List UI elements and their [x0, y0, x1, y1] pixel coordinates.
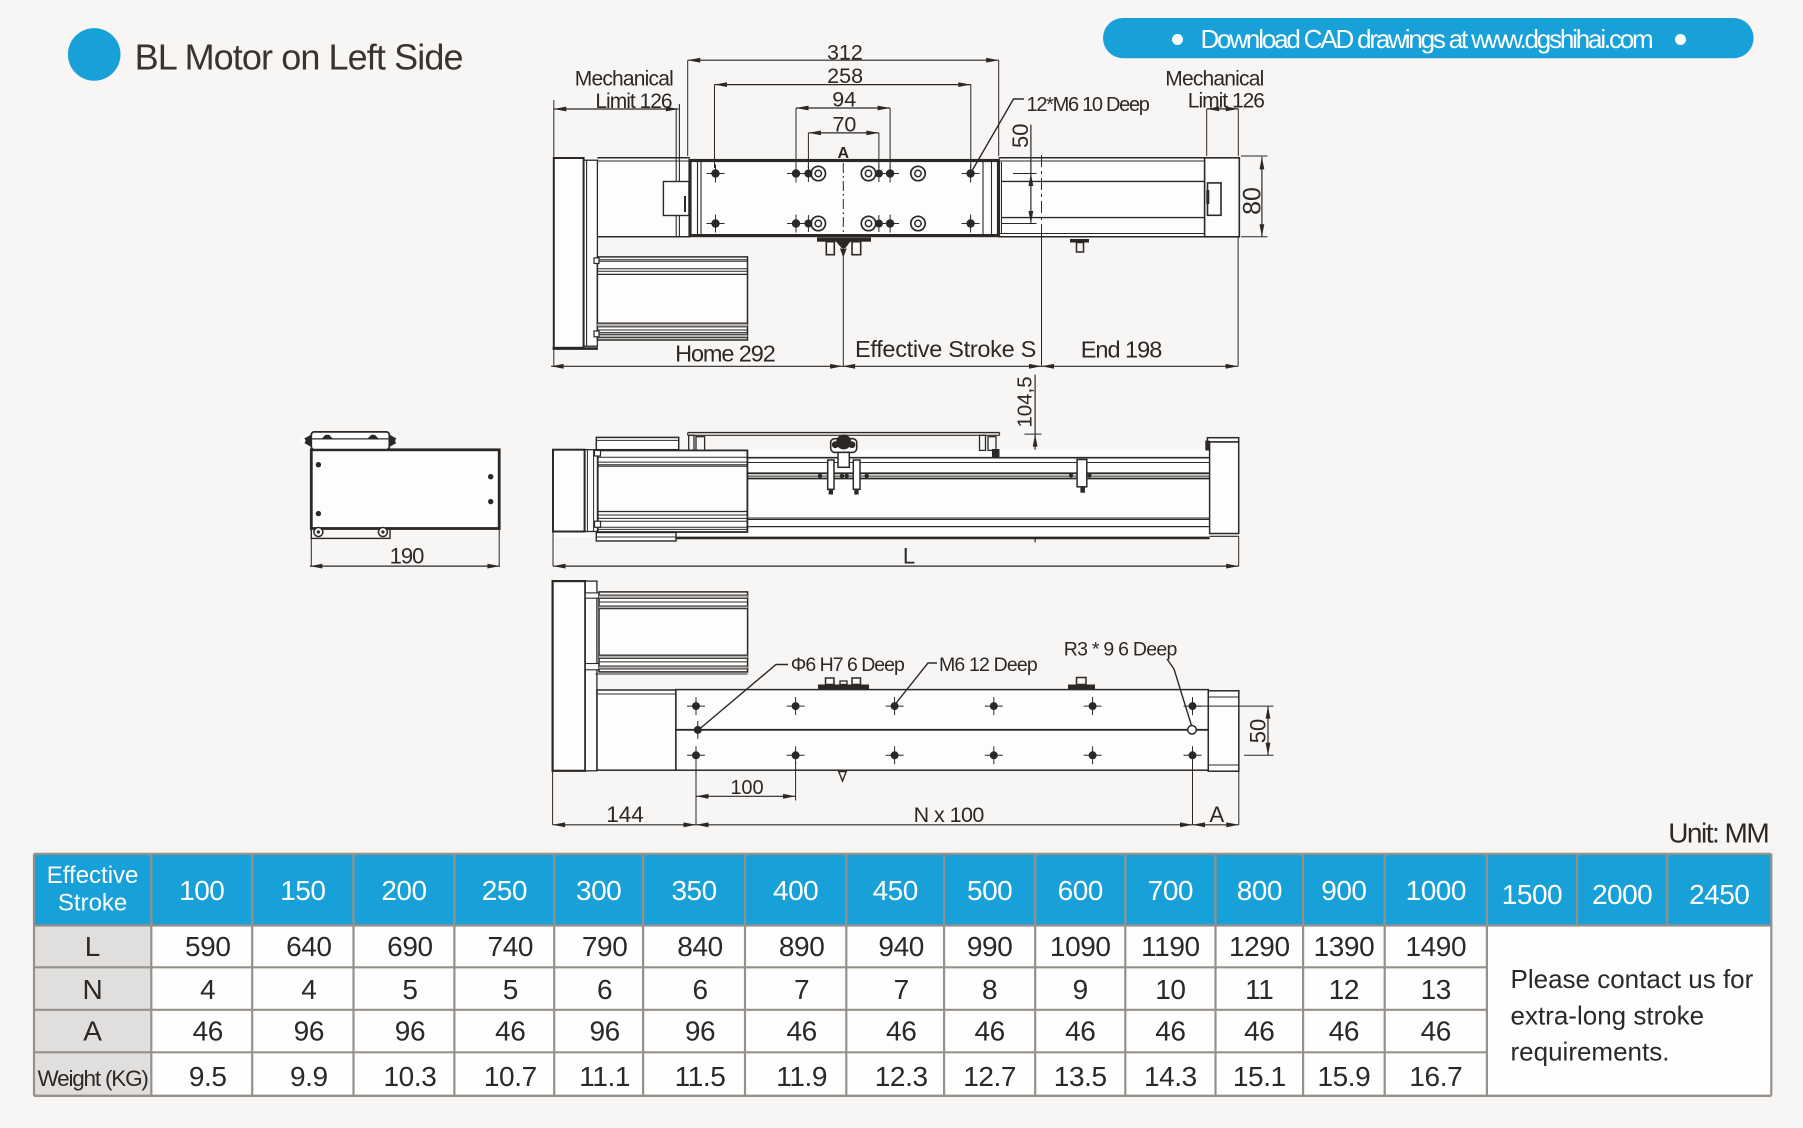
svg-text:312: 312 [827, 40, 863, 64]
svg-text:End 198: End 198 [1081, 336, 1162, 362]
svg-text:13: 13 [1421, 974, 1451, 1005]
svg-text:12.7: 12.7 [963, 1061, 1016, 1092]
svg-text:690: 690 [387, 931, 433, 962]
svg-text:990: 990 [967, 931, 1013, 962]
svg-text:258: 258 [827, 64, 863, 88]
svg-text:A: A [83, 1016, 102, 1047]
svg-text:Please contact us for: Please contact us for [1511, 964, 1754, 994]
svg-text:46: 46 [1244, 1016, 1274, 1047]
svg-text:640: 640 [286, 931, 332, 962]
svg-text:Effective: Effective [47, 862, 139, 889]
svg-text:46: 46 [1155, 1016, 1185, 1047]
svg-text:350: 350 [671, 875, 716, 906]
svg-text:5: 5 [503, 974, 518, 1005]
svg-text:300: 300 [576, 875, 621, 906]
svg-text:190: 190 [390, 544, 424, 569]
svg-text:46: 46 [1421, 1016, 1451, 1047]
svg-text:14.3: 14.3 [1144, 1061, 1197, 1092]
svg-text:144: 144 [606, 802, 644, 827]
svg-text:900: 900 [1321, 875, 1366, 906]
svg-text:9.9: 9.9 [290, 1061, 328, 1092]
svg-text:96: 96 [294, 1016, 324, 1047]
svg-text:840: 840 [677, 931, 723, 962]
svg-text:6: 6 [597, 974, 612, 1005]
svg-text:12.3: 12.3 [875, 1061, 928, 1092]
svg-text:740: 740 [488, 931, 534, 962]
svg-text:9: 9 [1073, 974, 1088, 1005]
svg-text:10.7: 10.7 [484, 1061, 537, 1092]
svg-text:6: 6 [692, 974, 707, 1005]
svg-text:11: 11 [1245, 974, 1273, 1005]
svg-text:Effective Stroke S: Effective Stroke S [855, 336, 1036, 362]
svg-text:1390: 1390 [1314, 931, 1375, 962]
svg-text:Mechanical: Mechanical [575, 68, 673, 91]
svg-text:1490: 1490 [1405, 931, 1466, 962]
svg-text:11.5: 11.5 [675, 1061, 726, 1092]
svg-text:500: 500 [967, 875, 1012, 906]
svg-text:4: 4 [200, 974, 215, 1005]
svg-text:600: 600 [1058, 875, 1103, 906]
svg-text:96: 96 [395, 1016, 425, 1047]
svg-text:12: 12 [1329, 974, 1359, 1005]
svg-text:46: 46 [495, 1016, 525, 1047]
svg-text:250: 250 [482, 875, 527, 906]
svg-text:13.5: 13.5 [1054, 1061, 1107, 1092]
svg-text:790: 790 [582, 931, 628, 962]
svg-text:10: 10 [1155, 974, 1185, 1005]
svg-text:50: 50 [1246, 719, 1271, 743]
svg-text:46: 46 [1065, 1016, 1095, 1047]
svg-text:400: 400 [773, 875, 818, 906]
svg-text:7: 7 [794, 974, 809, 1005]
svg-text:1090: 1090 [1050, 931, 1111, 962]
svg-text:N x 100: N x 100 [914, 803, 985, 827]
svg-text:100: 100 [730, 777, 763, 799]
svg-text:requirements.: requirements. [1511, 1037, 1670, 1067]
svg-text:8: 8 [982, 974, 997, 1005]
svg-text:Weight (KG): Weight (KG) [38, 1066, 149, 1091]
svg-text:96: 96 [685, 1016, 715, 1047]
svg-text:46: 46 [974, 1016, 1004, 1047]
svg-text:12*M6 10 Deep: 12*M6 10 Deep [1027, 94, 1150, 116]
svg-text:94: 94 [832, 88, 856, 112]
svg-text:L: L [903, 544, 915, 569]
svg-text:890: 890 [779, 931, 825, 962]
svg-text:1000: 1000 [1406, 875, 1466, 906]
svg-text:15.1: 15.1 [1233, 1061, 1286, 1092]
svg-text:150: 150 [280, 875, 325, 906]
svg-text:Download CAD drawings at www.d: Download CAD drawings at www.dgshihai.co… [1200, 24, 1652, 54]
svg-text:2000: 2000 [1592, 879, 1652, 910]
svg-text:10.3: 10.3 [383, 1061, 436, 1092]
svg-text:46: 46 [1329, 1016, 1359, 1047]
svg-text:200: 200 [381, 875, 426, 906]
svg-text:7: 7 [894, 974, 909, 1005]
svg-text:Stroke: Stroke [58, 890, 127, 917]
svg-text:15.9: 15.9 [1317, 1061, 1370, 1092]
svg-text:A: A [838, 145, 850, 162]
svg-text:Unit: MM: Unit: MM [1668, 818, 1768, 849]
svg-text:Φ6 H7 6 Deep: Φ6 H7 6 Deep [791, 654, 905, 676]
svg-text:46: 46 [193, 1016, 223, 1047]
svg-text:Limit 126: Limit 126 [595, 90, 672, 113]
svg-text:1290: 1290 [1229, 931, 1290, 962]
svg-text:L: L [85, 931, 101, 962]
svg-text:11.1: 11.1 [579, 1061, 630, 1092]
svg-text:450: 450 [873, 875, 918, 906]
svg-text:100: 100 [179, 875, 224, 906]
svg-text:70: 70 [832, 113, 856, 137]
svg-text:940: 940 [878, 931, 924, 962]
svg-text:4: 4 [301, 974, 316, 1005]
svg-text:A: A [1209, 802, 1224, 827]
svg-text:5: 5 [402, 974, 417, 1005]
svg-text:Home 292: Home 292 [675, 341, 775, 367]
svg-text:46: 46 [786, 1016, 816, 1047]
svg-text:R3 * 9 6 Deep: R3 * 9 6 Deep [1064, 638, 1178, 660]
svg-text:96: 96 [589, 1016, 619, 1047]
svg-text:1190: 1190 [1141, 931, 1200, 962]
svg-text:1500: 1500 [1502, 879, 1562, 910]
svg-text:BL Motor on Left Side: BL Motor on Left Side [135, 36, 463, 77]
svg-text:M6 12 Deep: M6 12 Deep [939, 654, 1038, 676]
svg-text:N: N [82, 974, 102, 1005]
svg-text:Mechanical: Mechanical [1165, 68, 1263, 91]
svg-text:700: 700 [1148, 875, 1193, 906]
svg-text:16.7: 16.7 [1409, 1061, 1462, 1092]
svg-text:50: 50 [1008, 123, 1033, 147]
svg-text:9.5: 9.5 [189, 1061, 227, 1092]
svg-text:2450: 2450 [1689, 879, 1749, 910]
svg-text:46: 46 [886, 1016, 916, 1047]
svg-text:590: 590 [185, 931, 231, 962]
svg-text:104,5: 104,5 [1014, 376, 1037, 427]
svg-text:800: 800 [1237, 875, 1282, 906]
svg-text:11.9: 11.9 [776, 1061, 827, 1092]
svg-text:extra-long stroke: extra-long stroke [1511, 1000, 1705, 1030]
